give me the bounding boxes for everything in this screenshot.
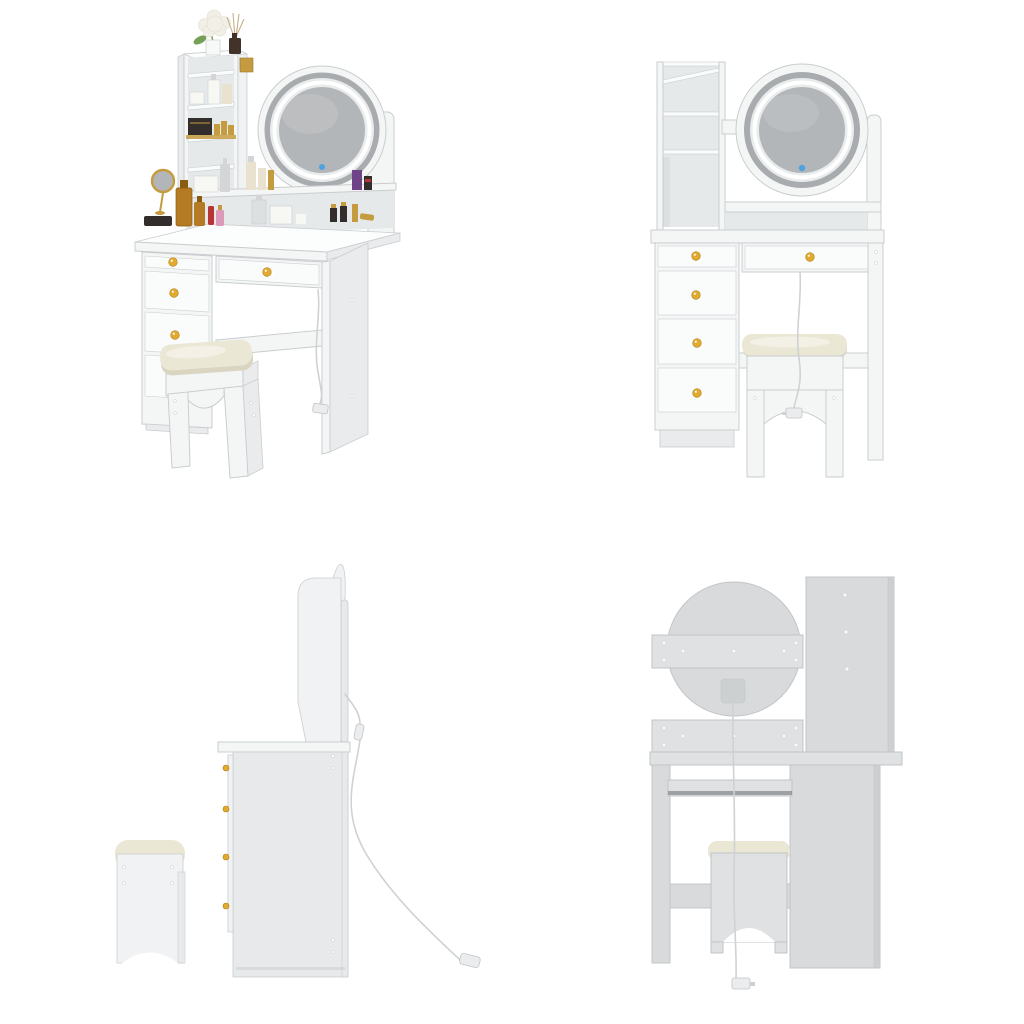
decor-flower-vase [192, 10, 230, 55]
drawer-knob [223, 806, 229, 812]
mirror-junction-box [721, 679, 745, 703]
view-side [0, 512, 512, 1024]
drawer-stack [655, 243, 739, 447]
mirror-touch-sensor-icon [319, 164, 325, 170]
vanity-side-render [0, 512, 512, 1024]
drawer-column-back [790, 765, 880, 968]
desktop [651, 230, 884, 243]
desk-side-panel [868, 243, 883, 460]
desk-side-panel [322, 243, 368, 454]
power-cord [345, 694, 481, 968]
wide-drawer [216, 256, 322, 288]
power-plug [732, 978, 750, 989]
led-mirror [258, 66, 386, 194]
desktop-edge [218, 742, 350, 752]
decor-gold-box [240, 58, 253, 72]
stool-leg [711, 942, 723, 953]
view-back [512, 512, 1024, 1024]
vanity-front34-render [0, 0, 512, 512]
drawer-knob [223, 903, 229, 909]
back-rail-top [652, 635, 803, 668]
shelf-tower-back [806, 577, 894, 752]
decor-hand-mirror [152, 170, 174, 215]
drawer-knob [223, 854, 229, 860]
desktop-back-edge [650, 752, 902, 765]
view-front [512, 0, 1024, 512]
display-shelf [725, 202, 881, 230]
stool-leg [775, 942, 787, 953]
stool-back [708, 841, 790, 953]
power-plug [312, 403, 328, 414]
stool-side [115, 840, 185, 964]
back-rail-bottom [652, 720, 803, 753]
power-plug [786, 408, 802, 418]
vanity-front-render [512, 0, 1024, 512]
stool-leg [747, 390, 764, 477]
cord-control-pod [353, 723, 364, 740]
shelf-tower [657, 62, 725, 230]
wide-drawer [742, 243, 878, 272]
desk-side [223, 752, 348, 977]
desk-leg-panel [652, 765, 670, 963]
backboard-edge [341, 600, 348, 742]
product-image-grid [0, 0, 1024, 1024]
shelf-tower-side [298, 578, 341, 742]
drawer-knob [223, 765, 229, 771]
stool-leg [168, 392, 190, 468]
drawer-front-edges [223, 755, 233, 932]
view-front-three-quarter [0, 0, 512, 512]
power-plug [459, 953, 481, 969]
mirror-touch-sensor-icon [799, 165, 805, 171]
led-mirror [736, 64, 868, 196]
drawer-slide-rail [668, 780, 792, 796]
stool-leg [826, 390, 843, 477]
vanity-back-render [512, 512, 1024, 1024]
